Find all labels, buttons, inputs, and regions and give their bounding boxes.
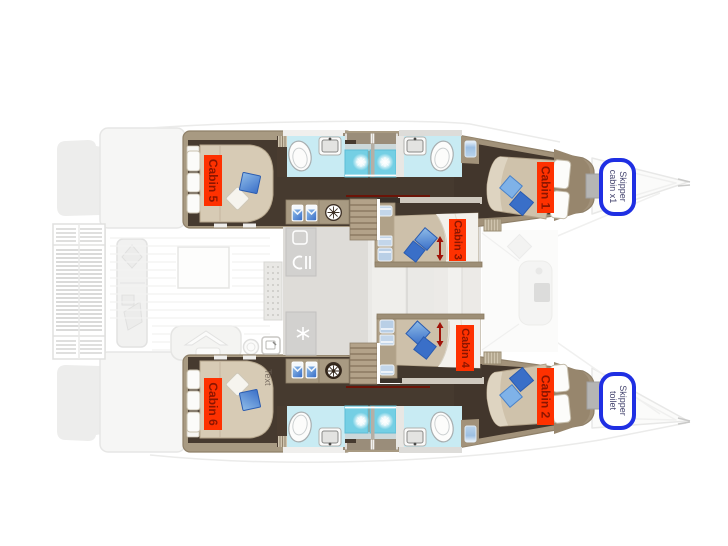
- svg-text:Cabin 3: Cabin 3: [452, 220, 464, 260]
- svg-text:Cabin 4: Cabin 4: [459, 328, 471, 369]
- svg-text:Cabin 1: Cabin 1: [539, 166, 553, 210]
- svg-text:Skipper: Skipper: [618, 171, 628, 202]
- svg-text:cabin x1: cabin x1: [608, 170, 618, 204]
- svg-text:Cabin 2: Cabin 2: [539, 375, 553, 419]
- svg-text:Cabin 5: Cabin 5: [206, 159, 220, 203]
- svg-text:Skipper: Skipper: [618, 385, 628, 416]
- svg-text:Text: Text: [263, 369, 273, 386]
- svg-text:toilet: toilet: [608, 391, 618, 411]
- svg-text:Cabin 6: Cabin 6: [206, 382, 220, 426]
